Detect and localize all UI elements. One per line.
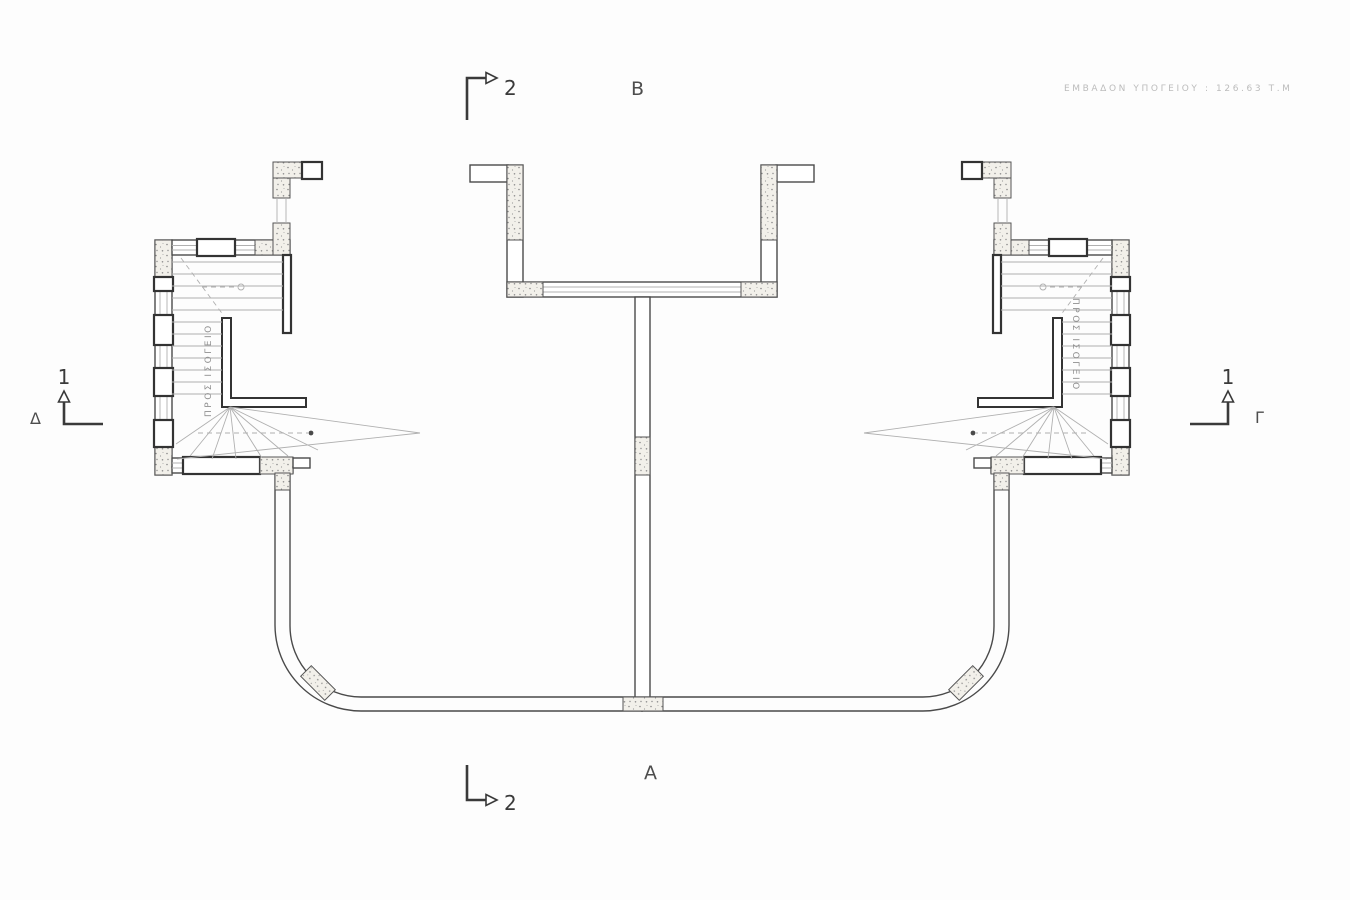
window-opening [154,368,173,396]
concrete-pier [635,437,650,475]
section-number: 2 [504,791,517,815]
concrete-pier [155,447,172,475]
concrete-pier [761,165,777,240]
arrow-right-icon [486,795,497,806]
concrete-pier [273,178,290,198]
level-mark-circle [238,284,244,290]
section-marker-2-top: 2 [467,73,517,121]
stair-note-right: ΠΡΟΣ ΙΣΟΓΕΙΟ [1070,298,1080,392]
section-number: 2 [504,76,517,100]
floor-plan-drawing: 2 2 1 1 Β Α Δ Γ ΠΡΟΣ ΙΣΟΓΕΙΟ ΠΡΟΣ ΙΣΟΓΕΙ… [0,0,1350,900]
flange-wall [776,165,814,182]
pier-flange [302,162,322,179]
label-right: Γ [1255,408,1264,427]
section-marker-1-left: 1 [58,365,103,424]
section-number: 1 [1222,365,1235,389]
window-opening [154,277,173,291]
wall-stub [283,255,291,333]
label-left: Δ [30,409,41,428]
staircase-unit [154,162,643,711]
arrow-up-icon [59,391,70,402]
lintel [183,457,260,474]
corridor-wall [275,474,643,711]
section-marker-1-right: 1 [1190,365,1234,424]
entry-pier [273,162,322,223]
walkline-dot [309,431,314,436]
label-bottom: Α [644,762,658,784]
concrete-pier [273,162,302,178]
concrete-pier [260,457,293,474]
floor-plan-sheet: 2 2 1 1 Β Α Δ Γ ΠΡΟΣ ΙΣΟΓΕΙΟ ΠΡΟΣ ΙΣΟΓΕΙ… [0,0,1350,900]
bottom-wall [172,457,310,490]
window-opening [154,315,173,345]
spine-wall [635,297,650,697]
concrete-pier [275,473,290,490]
concrete-pier [507,165,523,240]
area-annotation: ΕΜΒΑΔΟΝ ΥΠΟΓΕΙΟΥ : 126.63 Τ.Μ [1064,84,1293,94]
central-core [470,165,814,711]
concrete-pier [741,282,777,297]
top-wall [172,223,290,256]
window-opening [154,420,173,447]
stair-note-left: ΠΡΟΣ ΙΣΟΓΕΙΟ [204,323,214,417]
outer-wall [154,240,173,475]
concrete-block [301,666,336,701]
section-marker-2-bottom: 2 [467,765,517,815]
wall-step [293,458,310,468]
flange-wall [470,165,508,182]
label-top: Β [631,78,645,100]
core-base-wall [507,282,777,297]
concrete-pier [155,240,172,278]
concrete-pier [273,223,290,255]
arrow-up-icon [1223,391,1234,402]
arrow-right-icon [486,73,497,84]
section-number: 1 [58,365,71,389]
concrete-pier [507,282,543,297]
stair-core-wall [222,318,306,407]
concrete-pier [623,697,663,711]
lintel [197,239,235,256]
staircase-unit-right [641,162,1130,711]
